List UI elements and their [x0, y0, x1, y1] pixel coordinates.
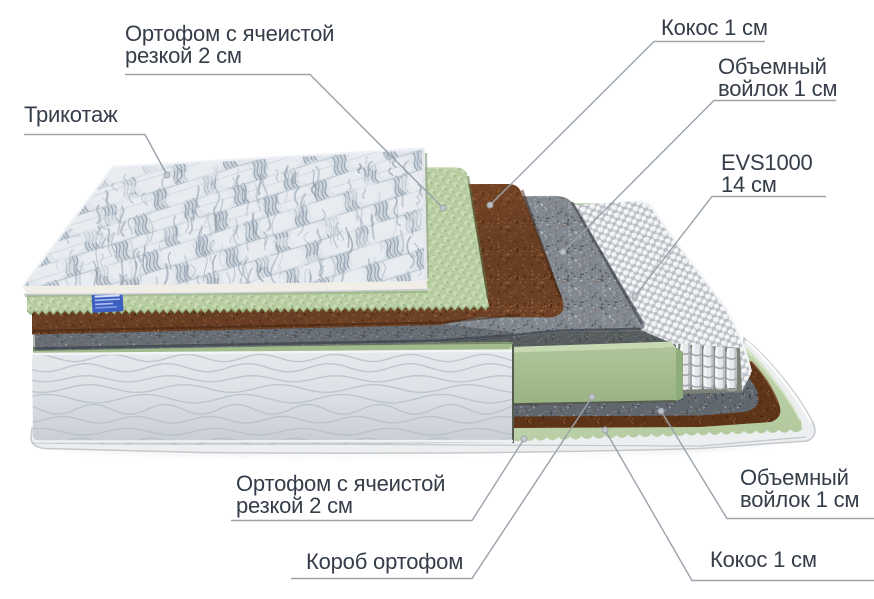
svg-text:Кокос 1 см: Кокос 1 см — [661, 15, 768, 40]
svg-text:резкой 2 см: резкой 2 см — [236, 493, 353, 518]
svg-text:войлок 1 см: войлок 1 см — [740, 487, 859, 512]
svg-text:резкой 2 см: резкой 2 см — [125, 43, 242, 68]
svg-text:Кокос 1 см: Кокос 1 см — [710, 547, 817, 572]
svg-text:Трикотаж: Трикотаж — [24, 102, 118, 127]
svg-text:войлок 1 см: войлок 1 см — [718, 76, 837, 101]
svg-text:14 см: 14 см — [721, 172, 777, 197]
svg-text:Короб ортофом: Короб ортофом — [306, 549, 463, 574]
